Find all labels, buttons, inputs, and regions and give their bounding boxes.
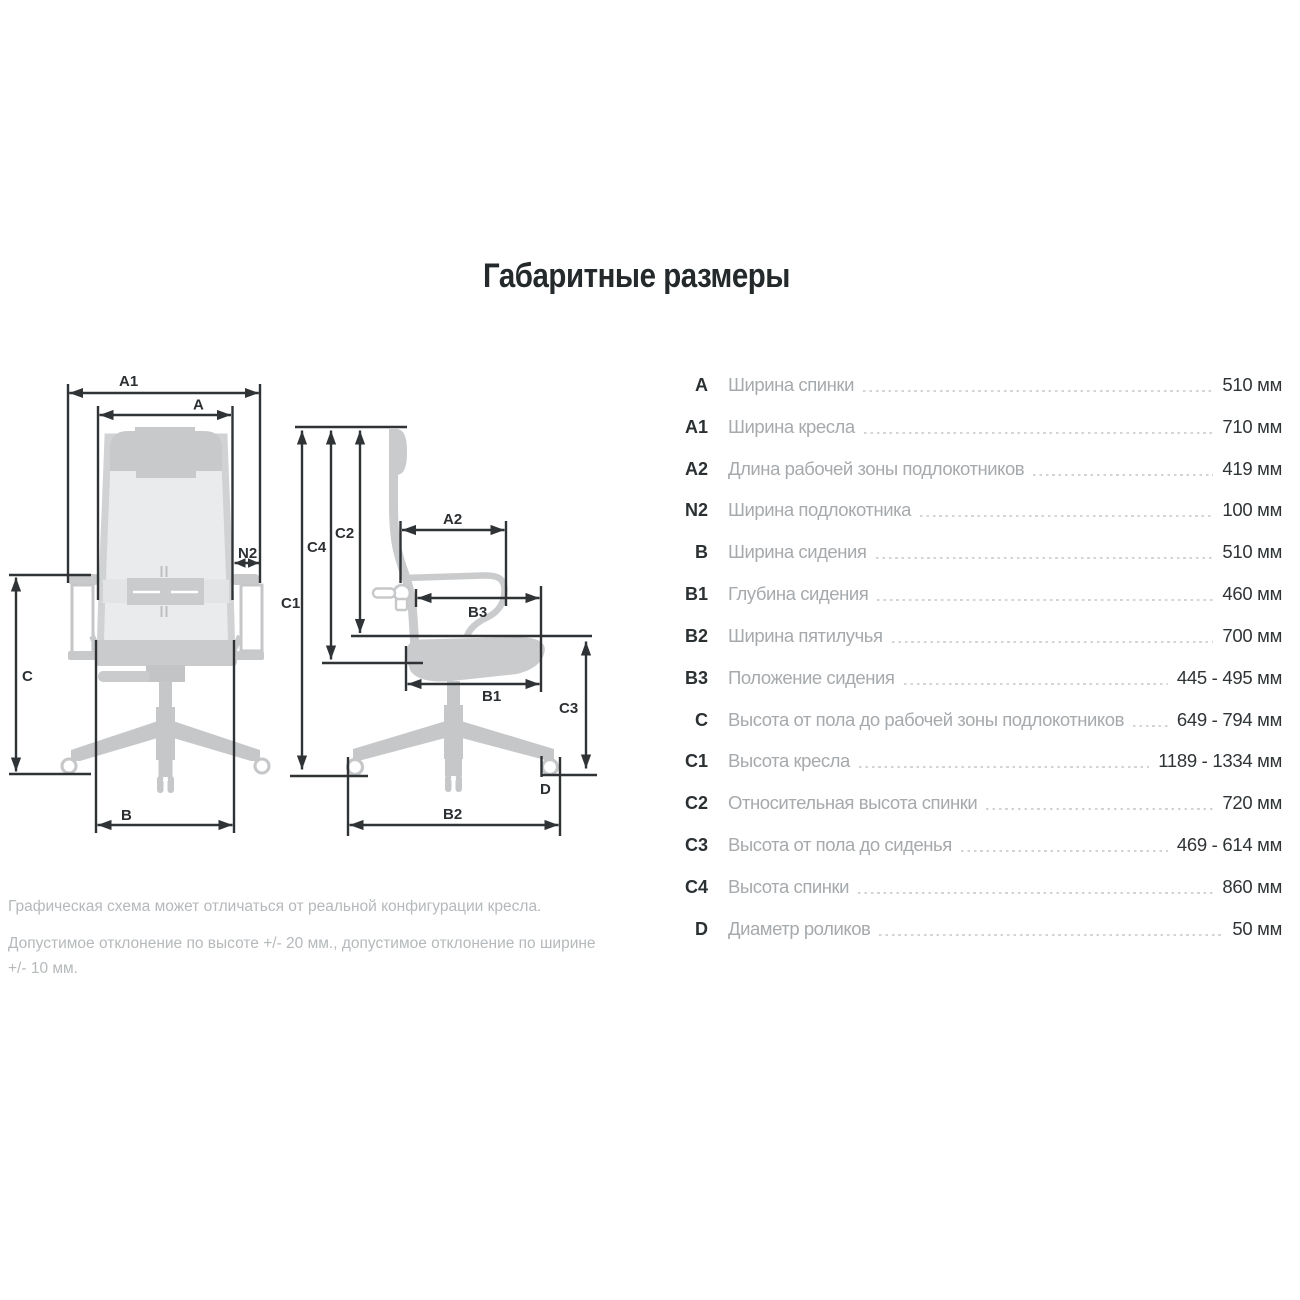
svg-text:C3: C3 <box>559 700 578 717</box>
svg-text:C1: C1 <box>281 595 300 612</box>
svg-text:B3: B3 <box>468 604 487 621</box>
svg-text:C: C <box>22 668 33 685</box>
svg-text:A1: A1 <box>119 373 138 390</box>
svg-text:C4: C4 <box>307 539 327 556</box>
svg-text:D: D <box>540 781 551 798</box>
svg-text:A2: A2 <box>443 511 462 528</box>
svg-text:B: B <box>121 807 132 824</box>
svg-text:C2: C2 <box>335 525 354 542</box>
svg-text:B1: B1 <box>482 688 501 705</box>
svg-text:N2: N2 <box>238 545 257 562</box>
svg-text:A: A <box>193 397 204 414</box>
svg-text:B2: B2 <box>443 806 462 823</box>
